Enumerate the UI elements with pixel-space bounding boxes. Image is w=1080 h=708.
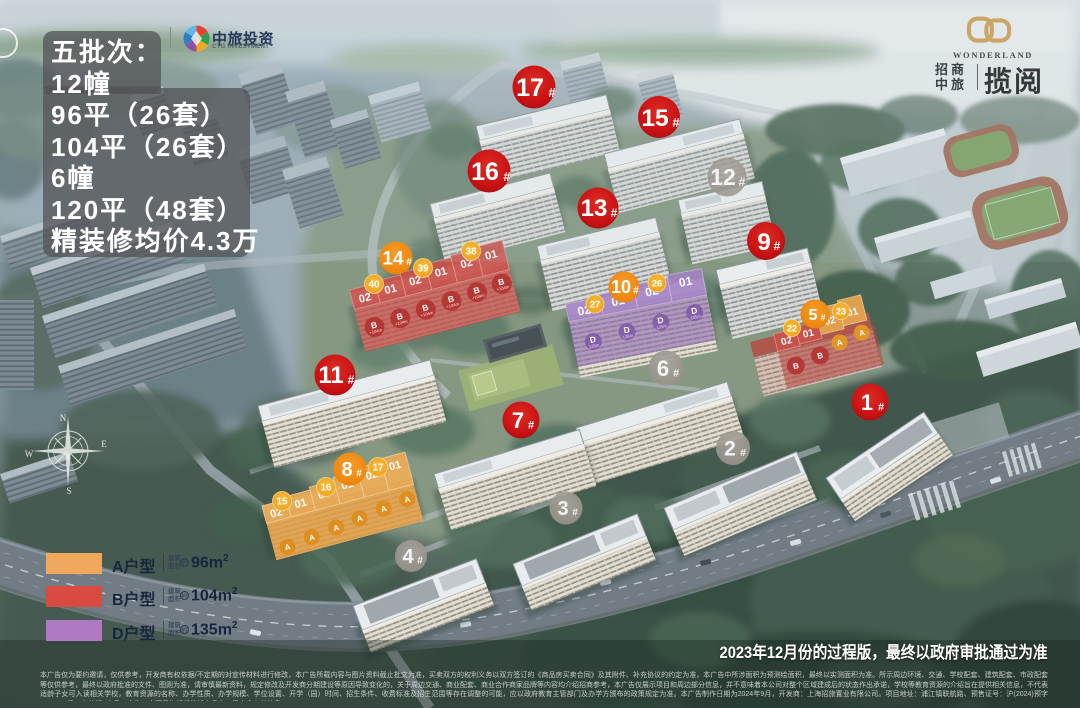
svg-text:#: # (348, 373, 355, 387)
svg-text:9: 9 (757, 229, 770, 256)
svg-text:#: # (611, 206, 618, 220)
svg-text:22: 22 (787, 324, 797, 334)
svg-text:3: 3 (557, 498, 568, 520)
svg-text:#: # (774, 239, 781, 253)
svg-text:27: 27 (590, 300, 601, 311)
svg-text:11: 11 (318, 362, 343, 389)
svg-text:16: 16 (320, 483, 332, 494)
svg-text:#: # (878, 402, 884, 414)
svg-text:38: 38 (465, 247, 477, 258)
svg-text:4: 4 (402, 546, 414, 568)
svg-text:16: 16 (471, 158, 499, 186)
svg-text:#: # (820, 313, 825, 323)
svg-text:#: # (548, 85, 556, 100)
svg-text:#: # (572, 508, 578, 519)
svg-text:15: 15 (276, 497, 288, 508)
svg-text:39: 39 (417, 264, 429, 275)
svg-text:#: # (528, 420, 534, 432)
svg-text:26: 26 (652, 279, 663, 290)
svg-text:#: # (417, 556, 423, 567)
svg-text:7: 7 (512, 408, 524, 433)
svg-text:2: 2 (724, 438, 736, 461)
svg-text:6: 6 (657, 356, 669, 381)
svg-text:#: # (673, 368, 679, 380)
svg-text:14: 14 (382, 249, 404, 270)
svg-text:15: 15 (641, 105, 668, 132)
svg-text:12: 12 (710, 164, 736, 190)
svg-text:#: # (740, 447, 746, 459)
svg-text:S: S (66, 486, 71, 496)
svg-text:N: N (60, 413, 67, 423)
svg-text:40: 40 (368, 280, 380, 291)
svg-text:#: # (406, 257, 412, 268)
svg-text:5: 5 (809, 307, 818, 324)
svg-text:13: 13 (581, 195, 608, 222)
svg-text:23: 23 (836, 307, 846, 317)
svg-text:10: 10 (611, 277, 631, 297)
svg-text:E: E (101, 439, 107, 449)
svg-text:8: 8 (341, 459, 352, 481)
svg-text:#: # (356, 469, 362, 480)
svg-text:W: W (25, 449, 34, 459)
svg-text:#: # (672, 115, 680, 130)
svg-text:#: # (739, 175, 746, 189)
svg-text:#: # (503, 169, 511, 184)
svg-text:17: 17 (516, 74, 544, 102)
svg-text:#: # (633, 286, 639, 297)
svg-text:1: 1 (861, 390, 873, 415)
svg-text:17: 17 (372, 463, 384, 474)
